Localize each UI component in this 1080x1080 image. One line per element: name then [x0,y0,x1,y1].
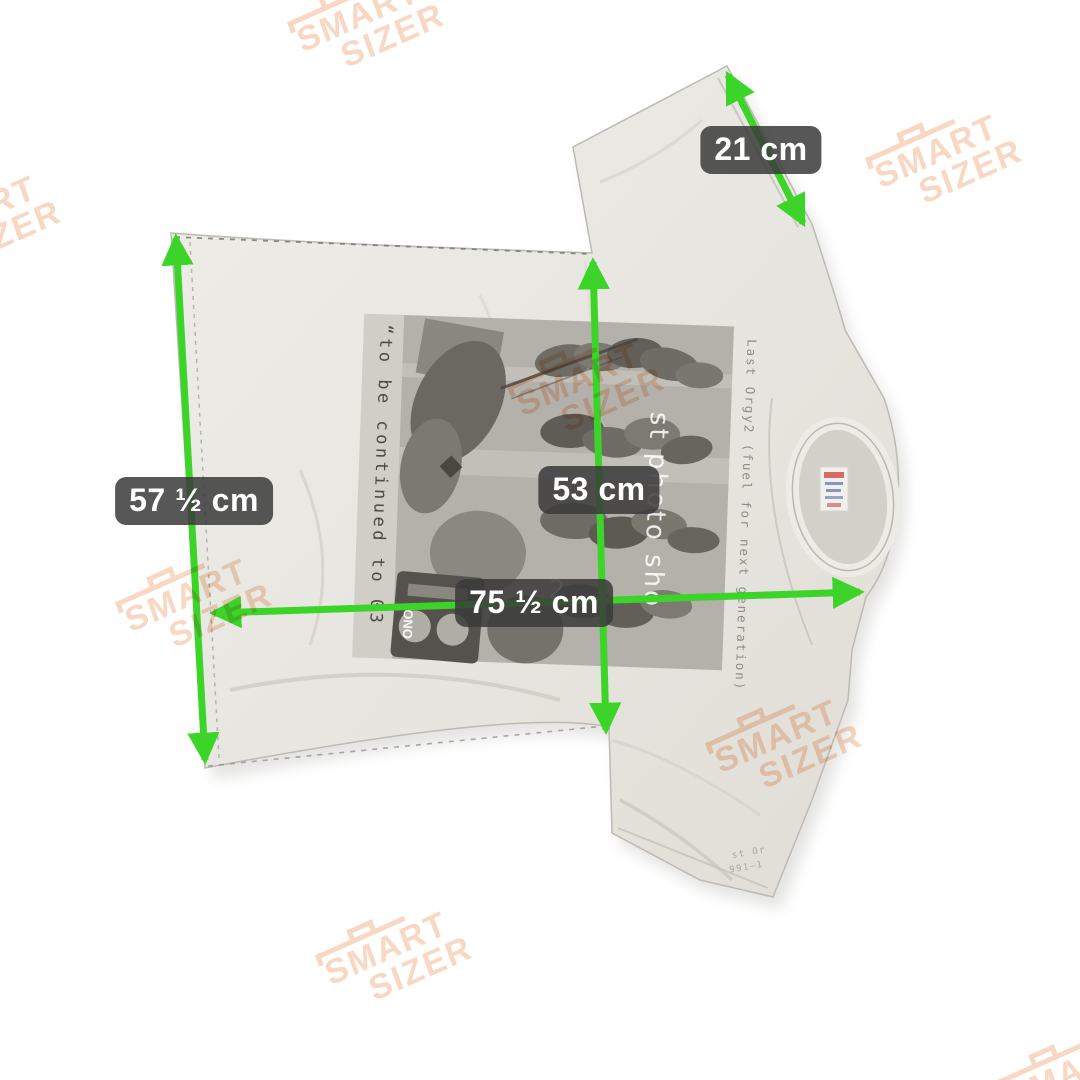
smart-sizer-annotated-photo: “to be continued to 03 [0,0,1080,1080]
measurement-label-hem-width: 57 ½ cm [115,477,273,525]
measurement-label-body-length: 75 ½ cm [455,579,613,627]
measurement-label-sleeve-width: 21 cm [700,126,821,174]
tshirt: “to be continued to 03 [171,66,903,897]
measurement-label-chest-width: 53 cm [538,466,659,514]
tshirt-photo: “to be continued to 03 [0,0,1080,1080]
neck-tag [820,467,848,511]
boombox-logo-text: ONO [400,609,416,639]
